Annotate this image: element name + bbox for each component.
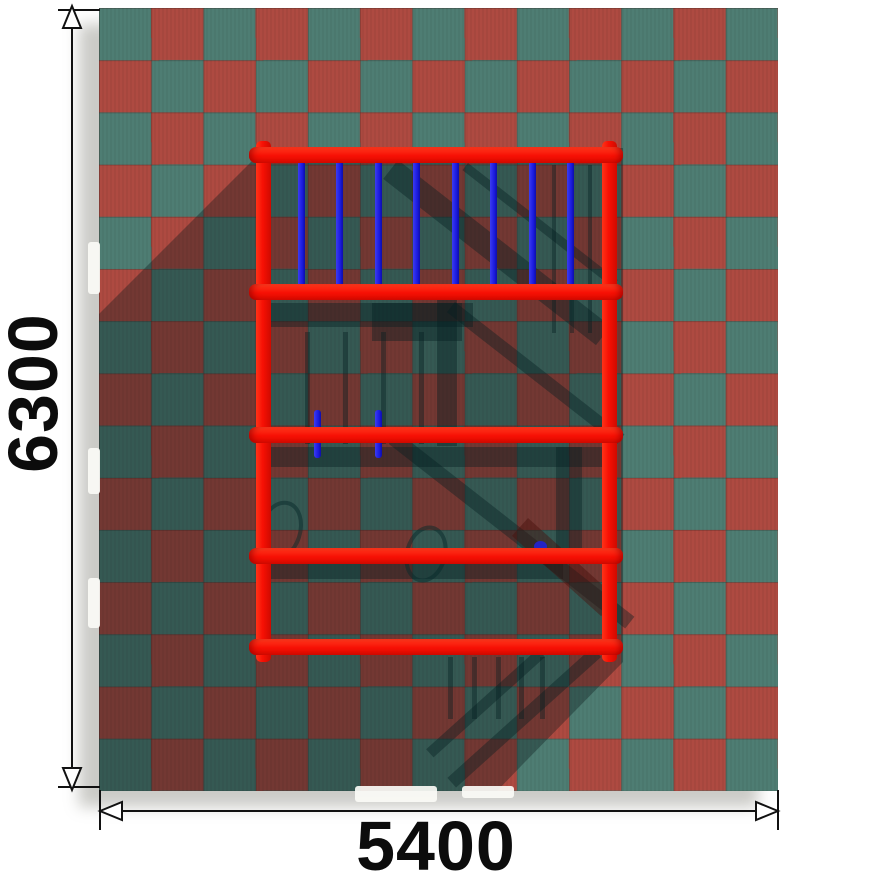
frame-rung [336,161,343,297]
dim-arrow-left-icon [100,802,122,820]
horizontal-dimension-label: 5400 [326,811,546,880]
frame-rail-right [602,141,617,662]
frame-bar [249,284,623,300]
frame-rung [298,161,305,297]
shadow-band [472,657,477,719]
frame-rung [452,161,459,297]
frame-bar [249,548,623,564]
shadow-band [540,657,545,719]
dim-arrow-down-icon [63,768,81,790]
dim-arrow-right-icon [756,802,778,820]
mat-tab [355,786,437,802]
shadow-band [556,447,582,549]
shadow-band [496,657,501,719]
rubber-mat [99,8,778,791]
frame-rung [529,161,536,297]
drawing-canvas: 6300 5400 [0,0,880,880]
frame-bar [249,427,623,443]
shadow-band [588,165,592,333]
shadow-band [448,657,453,719]
frame-bar [249,639,623,655]
mat-tab [88,242,100,294]
mat-tab [88,578,100,628]
shadow-band [437,300,457,446]
frame-rail-left [256,141,271,662]
mat-tab [88,448,100,494]
frame-rung [567,161,574,297]
frame-rung [413,161,420,297]
frame-rung [490,161,497,297]
frame-rung [375,161,382,297]
shadow-band [552,165,556,333]
mat-tab [462,786,514,798]
shadow-band [519,657,524,719]
frame-bar [249,147,623,163]
vertical-dimension-label: 6300 [0,283,68,503]
dim-arrow-up-icon [63,6,81,28]
